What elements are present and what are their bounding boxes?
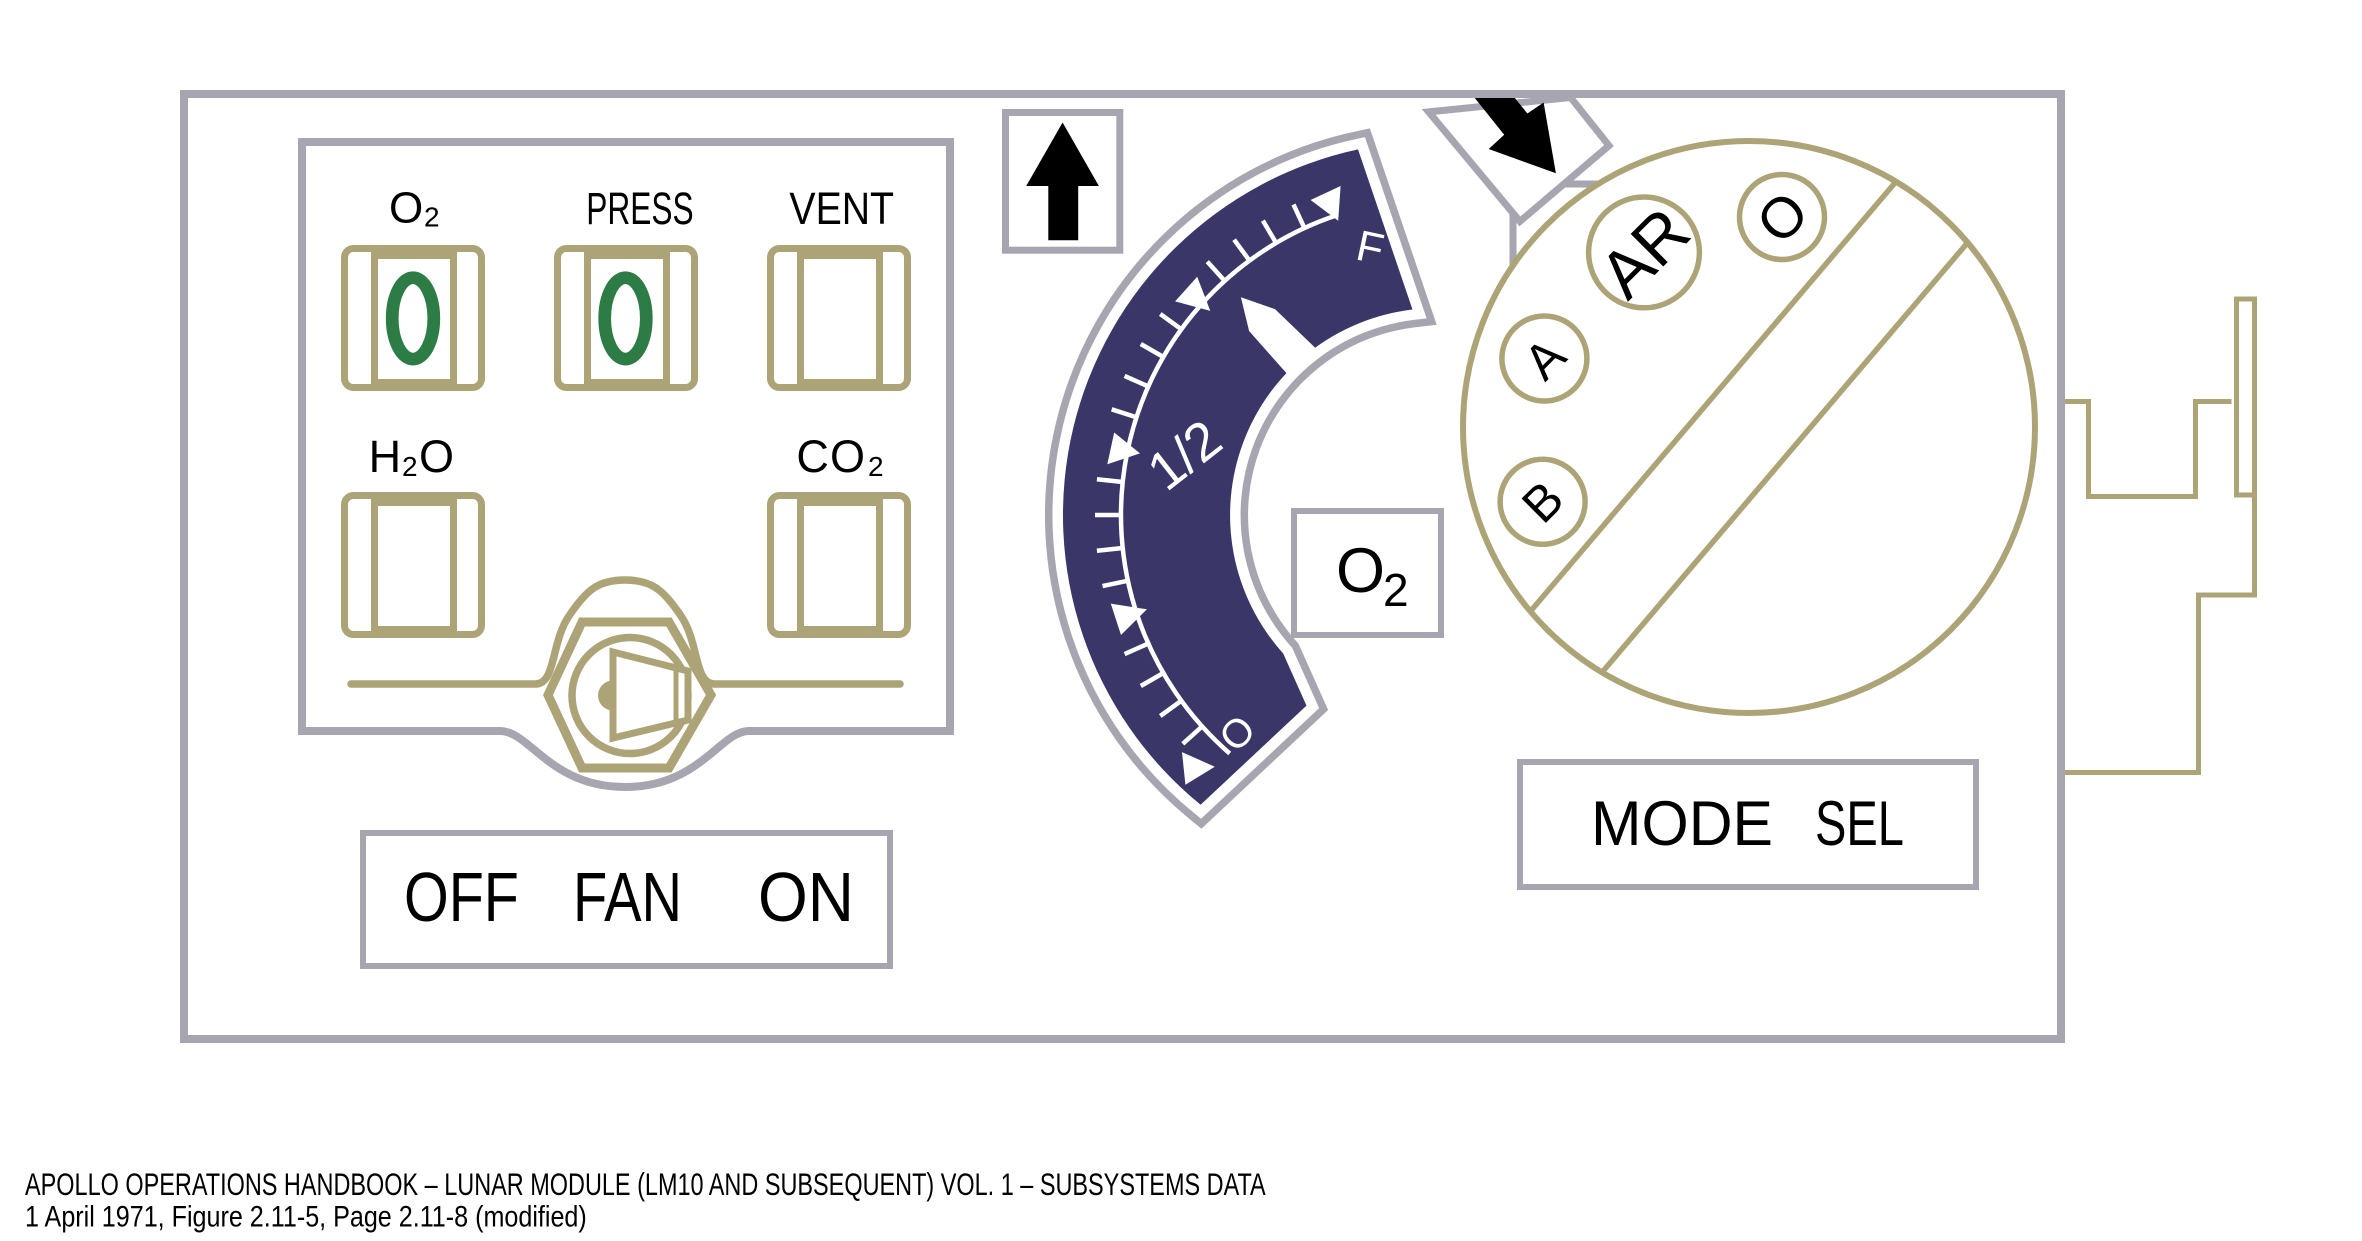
svg-text:MODE: MODE bbox=[1591, 789, 1773, 859]
svg-text:1 April 1971, Figure 2.11-5, P: 1 April 1971, Figure 2.11-5, Page 2.11-8… bbox=[25, 1200, 587, 1233]
svg-text:O: O bbox=[1336, 536, 1385, 606]
svg-text:PRESS: PRESS bbox=[586, 185, 693, 235]
svg-text:C: C bbox=[796, 431, 829, 482]
svg-text:2: 2 bbox=[424, 201, 440, 232]
svg-text:ON: ON bbox=[758, 858, 854, 936]
svg-text:O: O bbox=[419, 431, 454, 482]
svg-text:O: O bbox=[389, 184, 423, 233]
svg-text:FAN: FAN bbox=[573, 859, 682, 936]
svg-text:2: 2 bbox=[402, 451, 418, 482]
svg-text:VENT: VENT bbox=[789, 183, 894, 233]
svg-text:2: 2 bbox=[1383, 564, 1409, 616]
svg-text:H: H bbox=[369, 431, 402, 482]
svg-text:O: O bbox=[830, 431, 865, 482]
svg-text:OFF: OFF bbox=[404, 858, 519, 937]
svg-text:SEL: SEL bbox=[1815, 788, 1904, 858]
svg-text:APOLLO OPERATIONS HANDBOOK – L: APOLLO OPERATIONS HANDBOOK – LUNAR MODUL… bbox=[25, 1167, 1266, 1202]
svg-text:2: 2 bbox=[868, 451, 884, 482]
